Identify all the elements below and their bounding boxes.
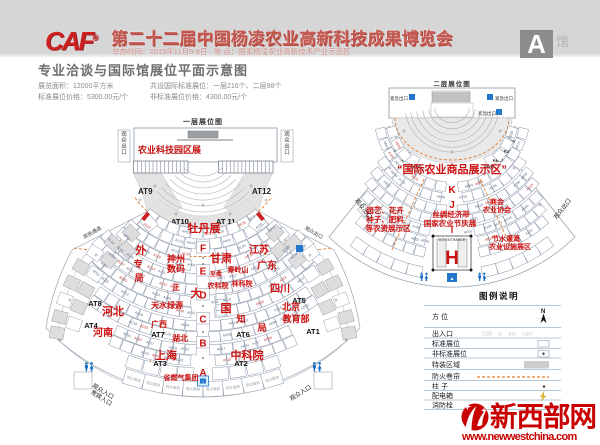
svg-text:观众出口: 观众出口 (552, 197, 573, 221)
svg-text:观众出口: 观众出口 (121, 131, 127, 156)
svg-text:AT6: AT6 (236, 330, 250, 339)
svg-text:一层展位图: 一层展位图 (183, 117, 223, 126)
svg-text:↕: ↕ (202, 379, 204, 384)
svg-text:AT2: AT2 (234, 359, 248, 368)
svg-text:河北: 河北 (102, 304, 124, 318)
svg-text:局: 局 (257, 323, 266, 333)
svg-text:知: 知 (235, 313, 245, 324)
svg-text:四川: 四川 (270, 283, 290, 295)
svg-text:观众入口: 观众入口 (289, 384, 313, 403)
svg-text:AC12: AC12 (181, 347, 190, 352)
svg-text:外: 外 (135, 243, 147, 257)
svg-text:AP25: AP25 (187, 311, 196, 316)
svg-text:教育部: 教育部 (281, 313, 309, 324)
svg-text:二层展位图: 二层展位图 (433, 79, 471, 88)
svg-text:农业协会: 农业协会 (482, 205, 512, 214)
svg-text:配电箱: 配电箱 (432, 391, 453, 400)
svg-text:紧急出口: 紧急出口 (495, 95, 513, 102)
svg-text:AT3: AT3 (153, 359, 167, 368)
svg-text:K: K (448, 185, 456, 196)
svg-text:“国际农业商品展示区”: “国际农业商品展示区” (397, 162, 507, 176)
svg-text:商会: 商会 (490, 197, 505, 206)
svg-text:江苏: 江苏 (249, 243, 269, 256)
svg-text:防火卷帘: 防火卷帘 (432, 372, 460, 381)
svg-text:AE05: AE05 (464, 229, 473, 234)
svg-text:AD17: AD17 (217, 347, 226, 352)
svg-text:E: E (200, 267, 207, 278)
svg-text:新西部网: 新西部网 (490, 401, 596, 432)
svg-text:农业科技园区展: 农业科技园区展 (137, 144, 201, 155)
svg-text:局: 局 (134, 273, 143, 283)
svg-text:AT5: AT5 (292, 296, 306, 305)
svg-text:观众出口: 观众出口 (284, 131, 290, 156)
svg-text:AT4: AT4 (84, 321, 98, 330)
svg-text:国家农业节庆展: 国家农业节庆展 (424, 218, 477, 228)
svg-text:观众服务: 观众服务 (186, 386, 201, 392)
svg-text:AT1: AT1 (306, 327, 320, 336)
svg-text:农科院: 农科院 (207, 281, 229, 290)
svg-text:正: 正 (172, 283, 180, 292)
svg-text:专: 专 (133, 258, 142, 269)
svg-text:观众服务: 观众服务 (206, 386, 221, 392)
svg-text:F: F (200, 244, 206, 255)
svg-text:AL11: AL11 (211, 300, 219, 305)
svg-text:丝绸经济带: 丝绸经济带 (432, 209, 470, 219)
svg-text:www.newwestchina.com: www.newwestchina.com (461, 431, 577, 443)
svg-text:神州: 神州 (167, 253, 185, 264)
svg-text:出入口: 出入口 (432, 329, 453, 338)
svg-text:节水灌溉: 节水灌溉 (492, 234, 520, 243)
svg-text:▲: ▲ (450, 276, 455, 282)
svg-text:甘肃: 甘肃 (210, 251, 232, 265)
svg-text:大: 大 (191, 286, 202, 300)
svg-text:AT8: AT8 (88, 299, 102, 308)
svg-text:紧急出口: 紧急出口 (390, 95, 408, 102)
svg-text:H: H (445, 248, 459, 269)
svg-text:农业设施展区: 农业设施展区 (488, 242, 531, 251)
svg-text:N: N (541, 309, 545, 315)
svg-text:省燃气集团: 省燃气集团 (163, 373, 199, 382)
svg-text:至柔: 至柔 (210, 270, 223, 278)
svg-text:AT12: AT12 (252, 187, 272, 196)
svg-text:牡丹展: 牡丹展 (188, 221, 222, 235)
svg-text:方 位: 方 位 (432, 312, 448, 321)
svg-text:特装区域: 特装区域 (432, 360, 460, 369)
svg-text:广西: 广西 (151, 319, 167, 329)
svg-text:标准展位: 标准展位 (432, 339, 460, 348)
svg-text:消防栓: 消防栓 (432, 401, 453, 410)
svg-text:图例说明: 图例说明 (479, 291, 519, 301)
svg-text:A D ENTRANCE: A D ENTRANCE (439, 238, 466, 242)
svg-text:C: C (199, 315, 206, 326)
svg-text:柱 子: 柱 子 (432, 382, 448, 391)
svg-text:AT9: AT9 (138, 187, 153, 196)
svg-text:秦岭山: 秦岭山 (227, 265, 249, 274)
svg-text:数码: 数码 (167, 263, 185, 274)
svg-text:B: B (199, 339, 206, 350)
svg-text:湖北: 湖北 (172, 333, 188, 343)
svg-text:非标准展位: 非标准展位 (432, 349, 467, 358)
svg-text:园艺、花卉: 园艺、花卉 (366, 205, 404, 215)
svg-text:天水绿源: 天水绿源 (151, 300, 183, 310)
svg-text:等农资展示区: 等农资展示区 (366, 223, 411, 233)
svg-text:广东: 广东 (257, 259, 277, 272)
svg-text:AT7: AT7 (151, 330, 165, 339)
svg-text:国: 国 (221, 302, 232, 315)
svg-text:林科院: 林科院 (232, 279, 253, 288)
svg-text:D20 ts ext rstel: D20 ts ext rstel (482, 332, 532, 338)
